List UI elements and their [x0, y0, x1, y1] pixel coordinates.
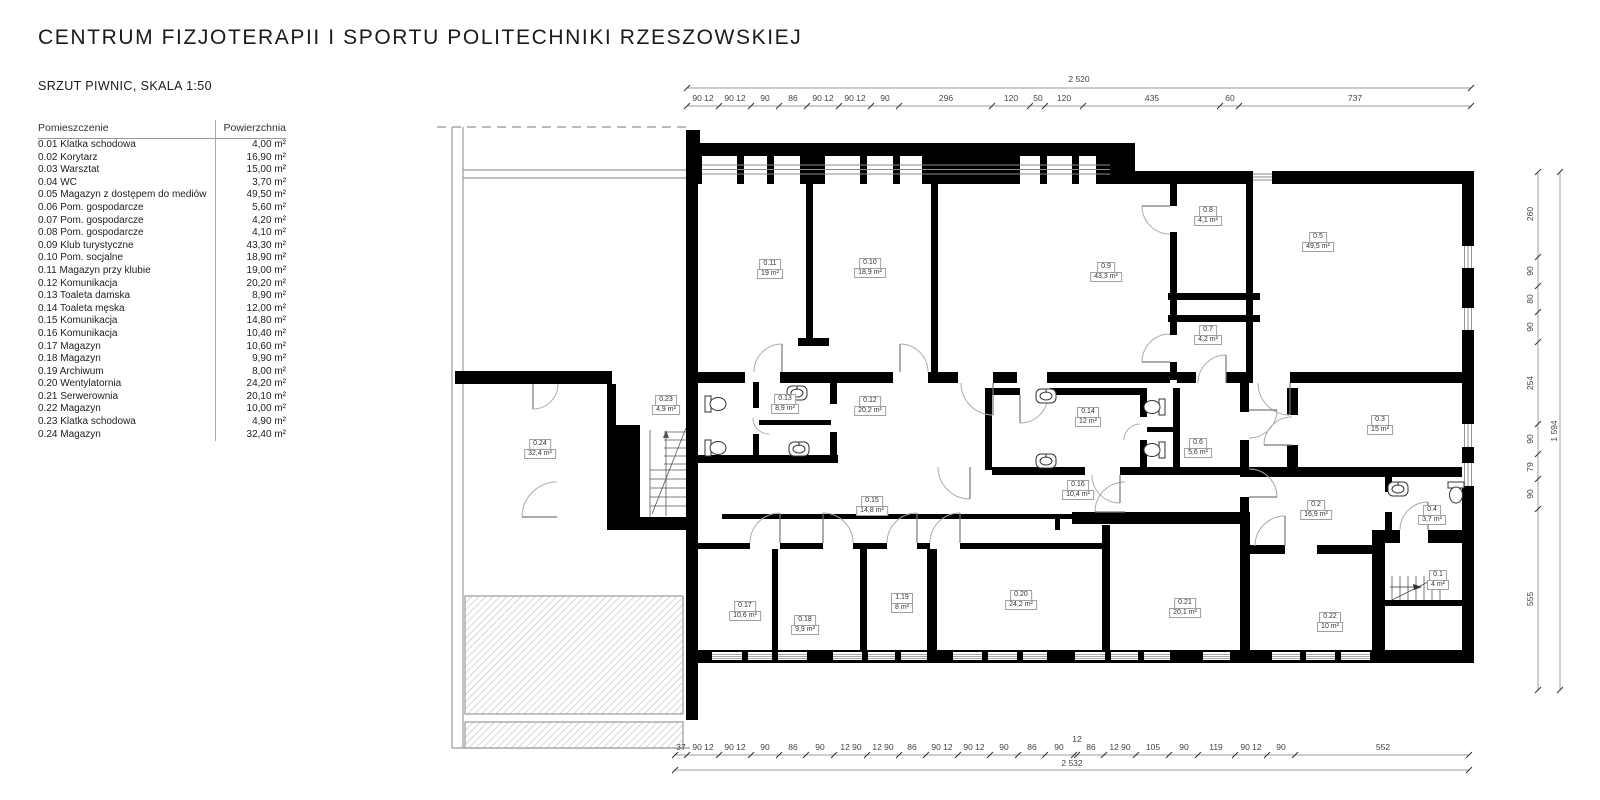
dimension-label: 90 — [999, 742, 1009, 752]
dimension-label: 90 12 — [692, 742, 714, 752]
dimension-label: 79 — [1525, 462, 1535, 472]
dimension-label: 552 — [1376, 742, 1390, 752]
dimension-label: 12 — [1072, 734, 1082, 744]
dimension-label: 12 90 — [840, 742, 862, 752]
dimension-label: 105 — [1146, 742, 1160, 752]
toilet-icon — [705, 440, 726, 456]
dimension-label: 90 — [760, 93, 770, 103]
dimension-label: 12 90 — [1109, 742, 1131, 752]
hatch-area — [465, 722, 683, 748]
sink-icon — [789, 442, 809, 456]
dimension-label: 90 — [1525, 322, 1535, 332]
dimension-label: 737 — [1348, 93, 1362, 103]
dimension-label: 296 — [939, 93, 953, 103]
dimension-label: 120 — [1004, 93, 1018, 103]
dimension-label: 90 12 — [812, 93, 834, 103]
dimension-label: 90 12 — [931, 742, 953, 752]
dimension-label: 86 — [907, 742, 917, 752]
floor-plan-page: { "header": { "title": "CENTRUM FIZJOTER… — [0, 0, 1600, 800]
dimension-label: 80 — [1525, 294, 1535, 304]
dimension-label: 260 — [1525, 207, 1535, 221]
dimension-label: 90 — [880, 93, 890, 103]
sink-icon — [787, 386, 807, 400]
dimension-label: 37 — [676, 742, 686, 752]
dimension-label: 435 — [1145, 93, 1159, 103]
toilet-icon — [705, 396, 726, 412]
dimension-label: 2 520 — [1068, 74, 1090, 84]
fixtures — [705, 386, 1464, 503]
dimension-label: 120 — [1057, 93, 1071, 103]
dimension-label: 119 — [1209, 742, 1223, 752]
dimension-label: 86 — [788, 93, 798, 103]
toilet-icon — [1144, 442, 1165, 458]
windows — [686, 165, 1474, 663]
dimension-label: 90 12 — [724, 742, 746, 752]
dimension-label: 2 532 — [1061, 758, 1083, 768]
south-window-band — [686, 650, 1370, 663]
sink-icon — [1036, 389, 1056, 403]
annex-outline — [437, 127, 690, 748]
dimension-label: 90 12 — [963, 742, 985, 752]
dimension-label: 254 — [1525, 376, 1535, 390]
toilet-icon — [1448, 482, 1464, 503]
hatch-area — [465, 596, 683, 714]
dimension-label: 90 — [1054, 742, 1064, 752]
dimension-label: 90 — [760, 742, 770, 752]
toilet-icon — [1144, 399, 1165, 415]
dimension-label: 90 12 — [1240, 742, 1262, 752]
dimension-label: 90 — [1525, 489, 1535, 499]
dimension-label: 12 90 — [872, 742, 894, 752]
dimension-label: 1 594 — [1549, 420, 1559, 442]
stairs-icon — [1390, 576, 1440, 600]
sink-icon — [1388, 482, 1408, 496]
dimension-label: 50 — [1033, 93, 1043, 103]
dimension-label: 60 — [1225, 93, 1235, 103]
dimension-label: 90 — [1276, 742, 1286, 752]
dimension-label: 90 — [815, 742, 825, 752]
dimension-label: 90 12 — [692, 93, 714, 103]
dimension-label: 86 — [1086, 742, 1096, 752]
floor-plan-drawing: 2 52090 1290 12908690 1290 1290296120501… — [0, 0, 1600, 800]
dimension-label: 86 — [1027, 742, 1037, 752]
dimension-label: 555 — [1525, 592, 1535, 606]
stairs-icon — [650, 428, 686, 517]
dimension-label: 90 — [1525, 434, 1535, 444]
dimension-label: 90 12 — [724, 93, 746, 103]
dimension-label: 86 — [788, 742, 798, 752]
dimension-label: 90 12 — [844, 93, 866, 103]
dimension-label: 90 — [1179, 742, 1189, 752]
sink-icon — [1036, 454, 1056, 468]
dimension-label: 90 — [1525, 266, 1535, 276]
